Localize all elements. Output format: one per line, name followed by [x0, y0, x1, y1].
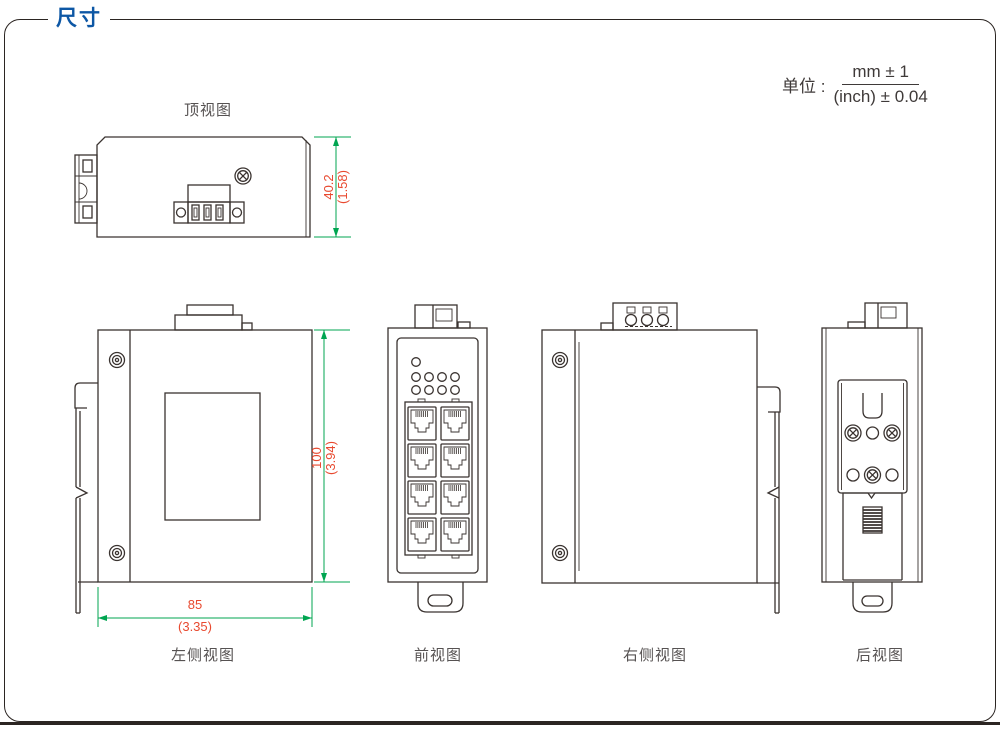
- front-view-label: 前视图: [388, 644, 488, 665]
- screw-row-bottom: [847, 467, 898, 483]
- right-terminal-block: [601, 303, 677, 330]
- front-din-tab: [418, 582, 463, 612]
- front-top-connector: [415, 305, 470, 328]
- unit-mm: mm ± 1: [842, 62, 919, 85]
- front-view-drawing: [380, 295, 495, 625]
- left-din-clip: [75, 383, 98, 613]
- left-view-label: 左侧视图: [143, 644, 263, 665]
- back-view-drawing: [815, 295, 935, 625]
- bottom-rule: [0, 722, 1000, 725]
- panel-screw-icon: [110, 353, 125, 561]
- rj45-port: [408, 518, 436, 551]
- rj45-port: [408, 444, 436, 477]
- rj45-port: [441, 444, 469, 477]
- right-view-label: 右侧视图: [595, 644, 715, 665]
- rj45-port-block: [405, 399, 472, 558]
- top-view-label: 顶视图: [158, 99, 258, 120]
- lower-clip: [843, 493, 902, 580]
- spring: [863, 507, 882, 533]
- dim-text-40: 40.2 (1.58): [321, 152, 351, 222]
- back-view-label: 后视图: [830, 644, 930, 665]
- dim-text-85: 85: [145, 598, 245, 612]
- panel-screw-icon: [553, 353, 568, 561]
- unit-note: 单位 : mm ± 1 (inch) ± 0.04: [782, 62, 928, 107]
- right-body: [542, 330, 757, 583]
- back-top-connector: [848, 303, 907, 328]
- rj45-port: [441, 518, 469, 551]
- led-indicators: [412, 358, 460, 395]
- unit-inch: (inch) ± 0.04: [833, 85, 927, 107]
- rj45-port: [441, 481, 469, 514]
- rj45-port: [441, 407, 469, 440]
- ground-screw-icon: [235, 168, 251, 184]
- label-area: [165, 393, 260, 520]
- unit-label: 单位 :: [782, 72, 825, 97]
- rj45-port: [408, 481, 436, 514]
- screw-row-top: [845, 425, 900, 441]
- right-din-clip: [757, 387, 780, 613]
- right-view-drawing: [530, 295, 790, 625]
- top-body: [97, 137, 310, 237]
- terminal-block: [174, 185, 244, 223]
- left-top-connector: [175, 305, 252, 330]
- left-body: [78, 330, 312, 582]
- unit-fraction: mm ± 1 (inch) ± 0.04: [833, 62, 927, 107]
- back-din-tab: [853, 582, 892, 612]
- dimension-drawing-page: 尺寸 单位 : mm ± 1 (inch) ± 0.04 顶视图: [0, 0, 1000, 733]
- u-slot: [863, 393, 882, 418]
- page-title: 尺寸: [48, 2, 110, 32]
- top-din-clip: [75, 155, 97, 223]
- rj45-port: [408, 407, 436, 440]
- dim-text-335: (3.35): [145, 620, 245, 634]
- dim-text-100: 100 (3.94): [309, 423, 339, 493]
